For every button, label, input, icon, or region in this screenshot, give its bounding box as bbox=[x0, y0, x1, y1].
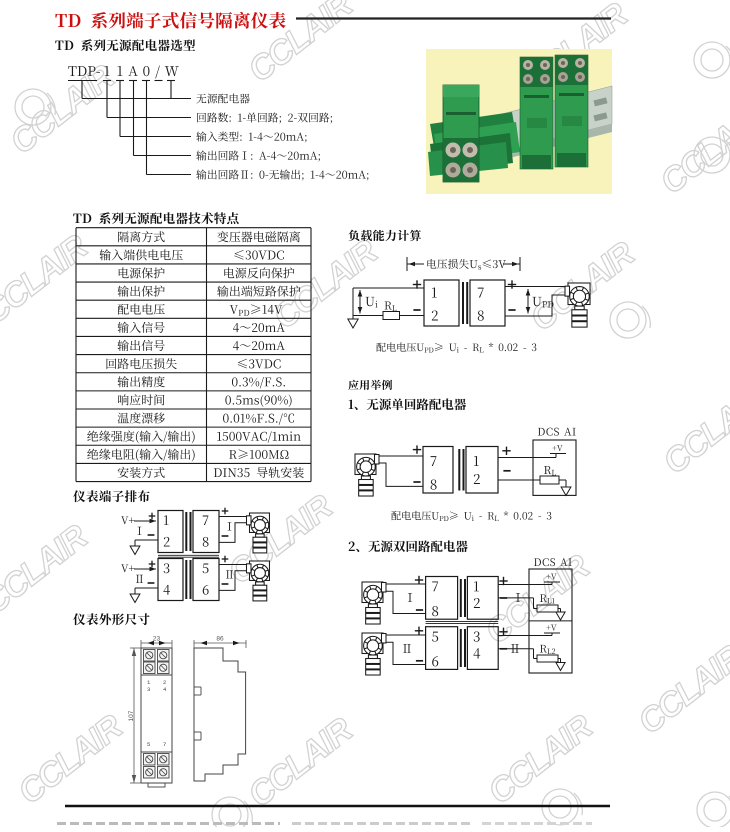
svg-text:3: 3 bbox=[147, 686, 150, 693]
svg-text:107: 107 bbox=[128, 710, 135, 721]
svg-text:23: 23 bbox=[153, 636, 161, 643]
svg-text:2: 2 bbox=[163, 679, 166, 686]
svg-text:7: 7 bbox=[163, 741, 166, 748]
svg-text:86: 86 bbox=[216, 636, 224, 643]
svg-text:5: 5 bbox=[147, 741, 150, 748]
